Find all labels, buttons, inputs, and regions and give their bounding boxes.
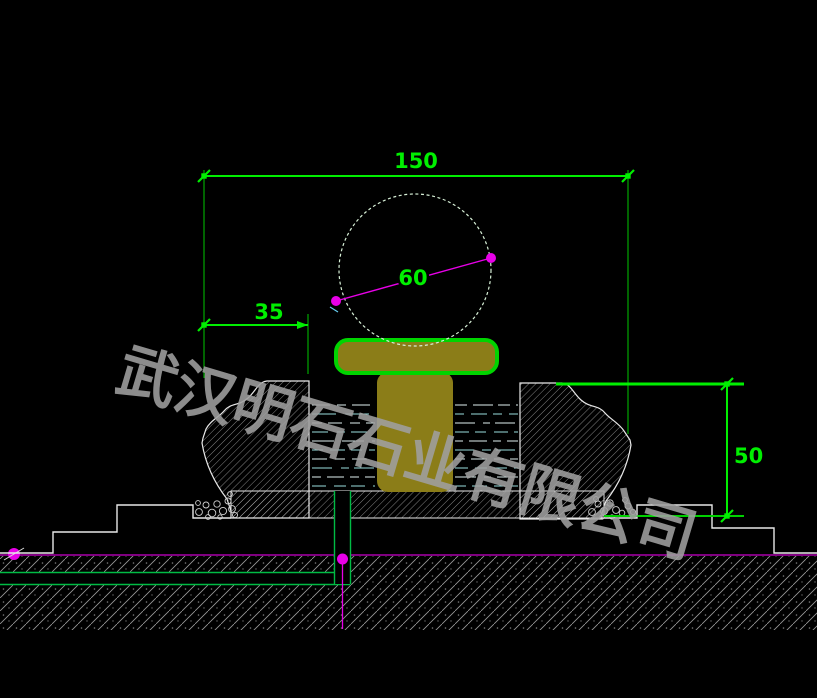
- pedestal: [377, 372, 453, 492]
- basin-wall-left: [202, 381, 309, 518]
- subgrade-hatch: [0, 556, 817, 630]
- plinth-steps-left: [0, 505, 231, 553]
- dim-50-text: 50: [734, 444, 763, 468]
- ball-seat-collar: [336, 340, 497, 373]
- cad-drawing-fountain-section: 150 35 60 50 武汉明石石业有限公司: [0, 0, 817, 698]
- dimension-rim-width: 35: [198, 300, 308, 374]
- basin-wall-right: [520, 383, 631, 519]
- dim-150-text: 150: [394, 149, 438, 173]
- drain-pipe-horizontal: [0, 573, 351, 585]
- dim-35-text: 35: [254, 300, 283, 324]
- dim-60-text: 60: [398, 266, 427, 290]
- drawing-canvas: 150 35 60 50: [0, 0, 817, 698]
